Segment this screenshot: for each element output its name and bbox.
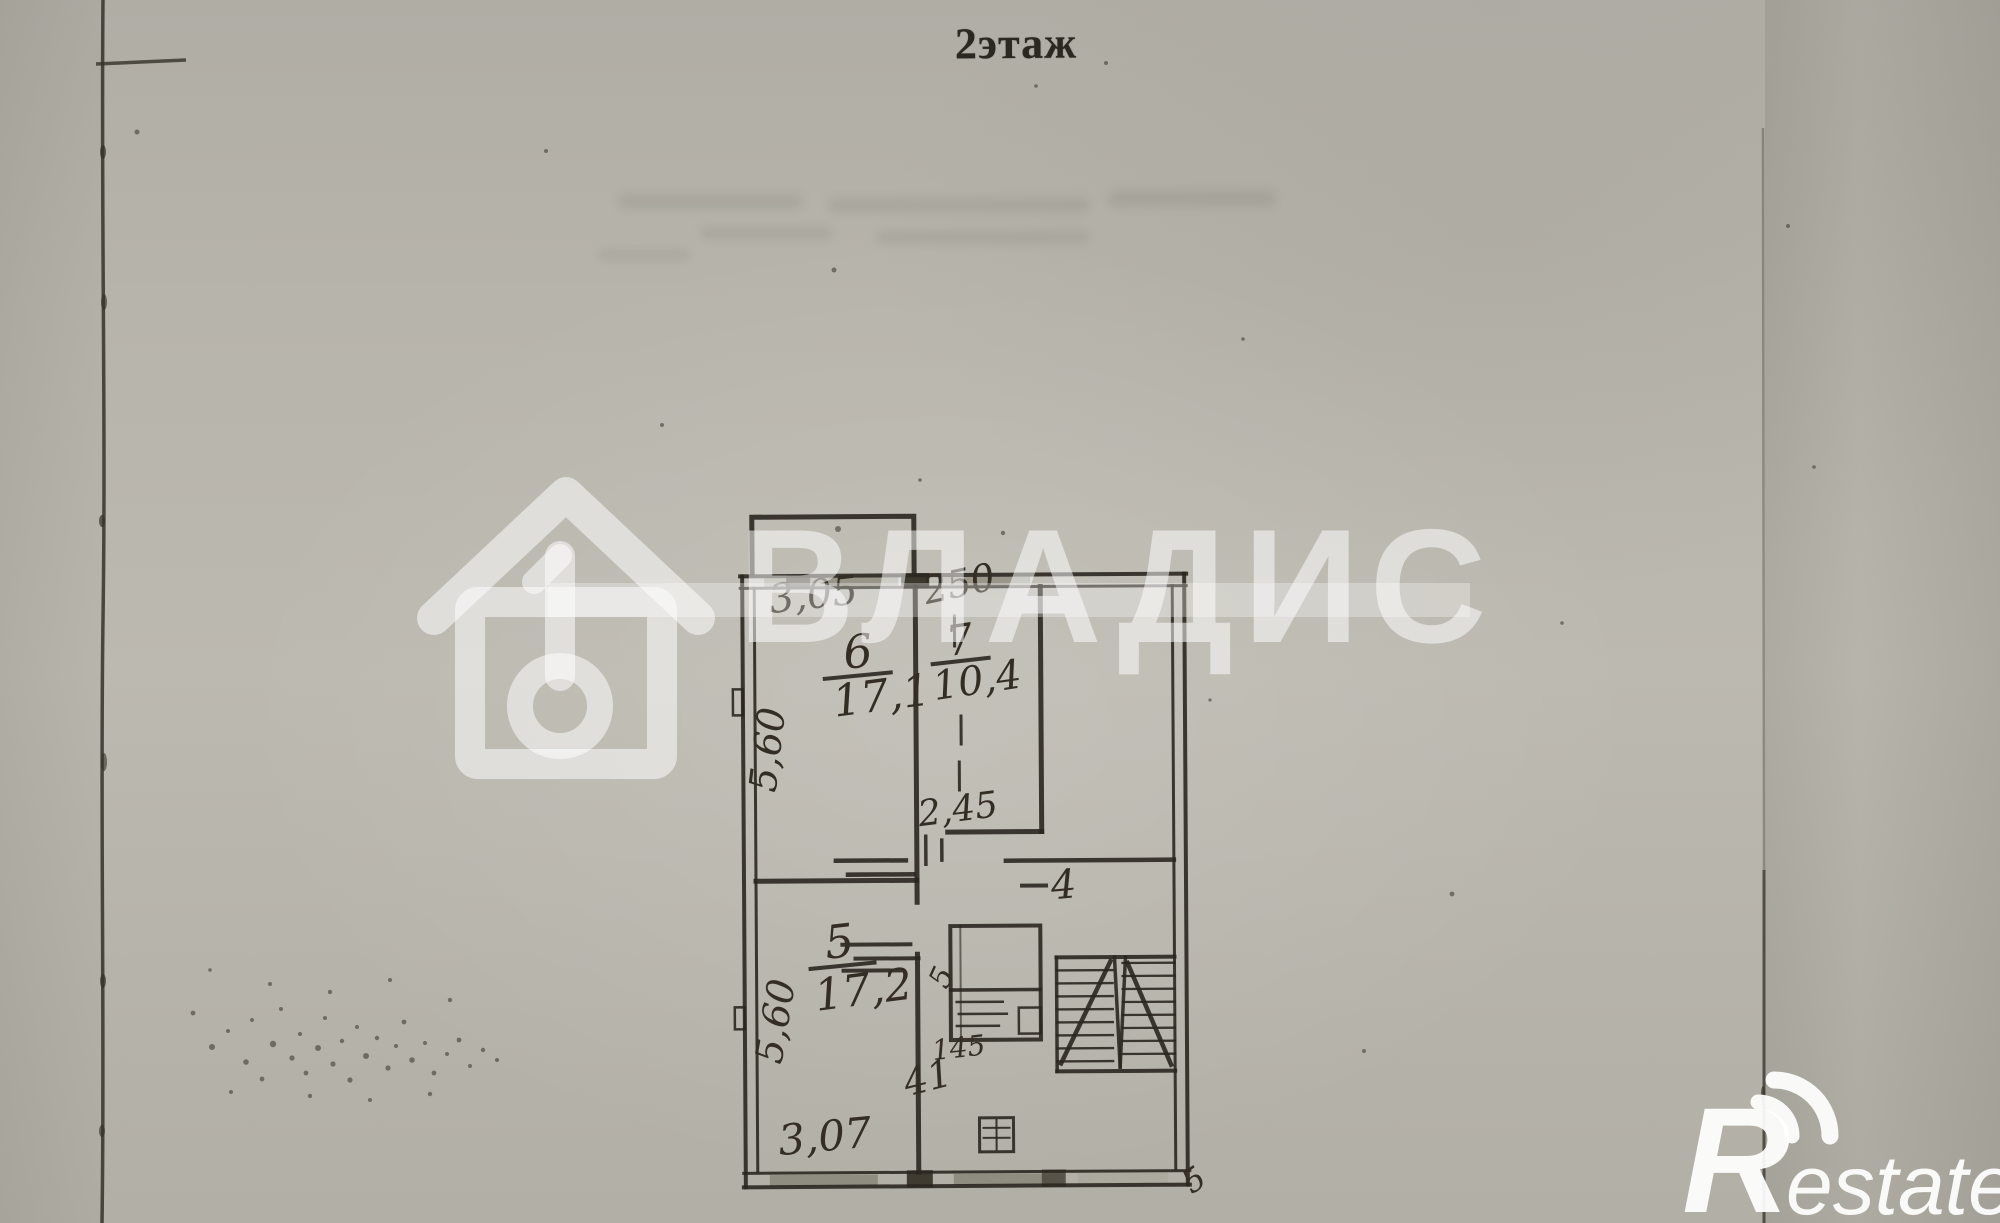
scanned-floorplan-page: 2этаж [0, 0, 2000, 1223]
restate-watermark: R estate [1630, 1050, 2000, 1223]
restate-text: estate [1786, 1138, 2000, 1223]
wc-number: 5 [922, 961, 962, 993]
door-marks [836, 835, 1047, 970]
dim-room6-depth: 5,60 [741, 705, 795, 794]
dim-wc-width: 145 [930, 1028, 987, 1067]
dim-corridor-depth: 2,45 [915, 784, 1001, 835]
vladis-watermark-text: ВЛАДИС [738, 506, 1496, 668]
staircase [1056, 957, 1175, 1072]
corner-mark: 5 [1175, 1158, 1214, 1201]
house-key-icon [404, 468, 734, 808]
dim-room5-width: 3,07 [776, 1108, 874, 1166]
hall-number: 4 [1048, 861, 1079, 909]
room-5-number: 5 [822, 913, 857, 970]
entry-hatch-square [979, 1118, 1013, 1152]
bathroom-block [950, 926, 1041, 1041]
